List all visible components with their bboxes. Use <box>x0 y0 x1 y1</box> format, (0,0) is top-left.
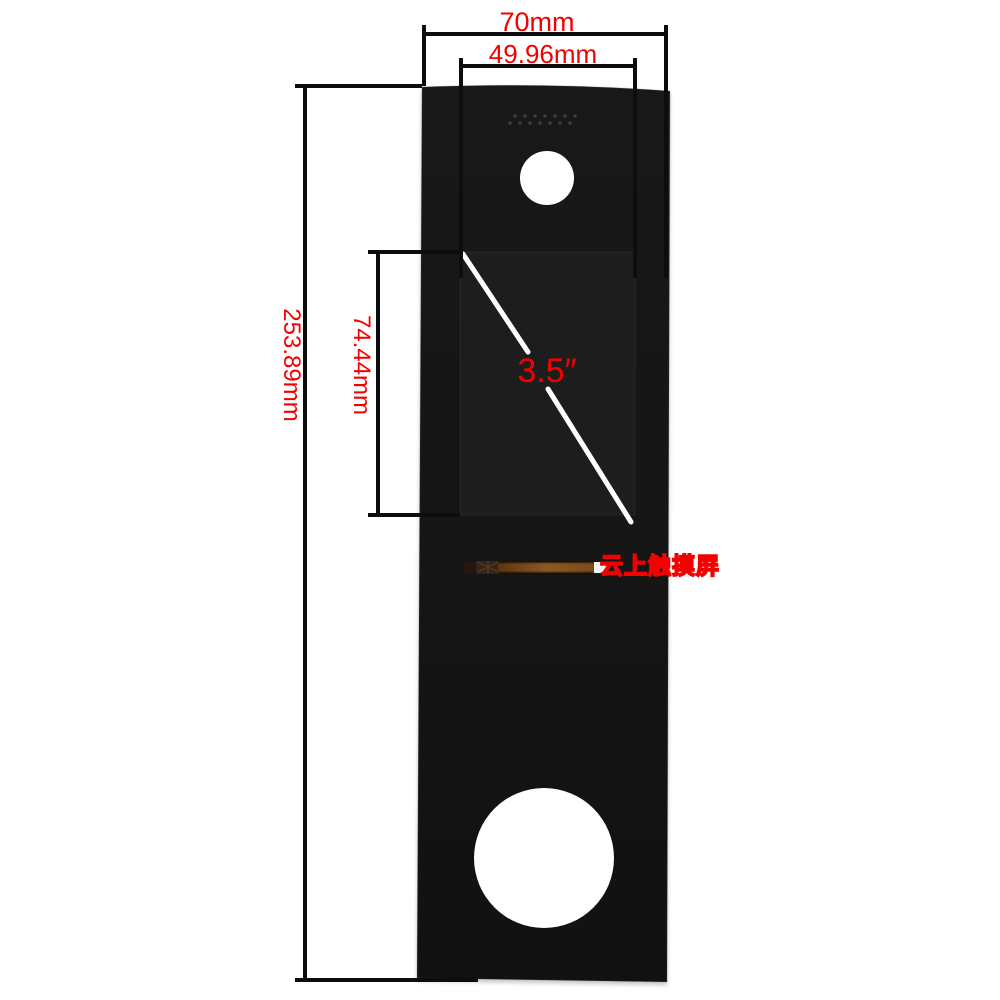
speaker-dot <box>568 121 572 125</box>
speaker-dot <box>523 114 527 118</box>
cable-strip-edge-top <box>498 562 596 564</box>
cable-tip <box>462 562 478 574</box>
cable-strip <box>498 562 596 573</box>
speaker-dot <box>518 121 522 125</box>
speaker-dot <box>543 114 547 118</box>
cable-strip-edge-bottom <box>498 572 596 574</box>
speaker-dot <box>528 121 532 125</box>
camera-hole <box>520 151 574 205</box>
speaker-dot <box>513 114 517 118</box>
product-photo: 70mm 49.96mm 253.89mm 74.44mm 3.5″ 云上触摸屏 <box>0 0 1000 1000</box>
bottom-hole <box>474 788 614 928</box>
label-outer-width: 70mm <box>499 9 574 36</box>
speaker-dot <box>548 121 552 125</box>
speaker-dot <box>558 121 562 125</box>
speaker-dot <box>563 114 567 118</box>
panel-graphic <box>0 0 1000 1000</box>
speaker-dot <box>538 121 542 125</box>
speaker-dot <box>573 114 577 118</box>
speaker-dot <box>533 114 537 118</box>
flex-cable <box>462 561 608 574</box>
watermark-text: 云上触摸屏 <box>600 555 720 578</box>
label-screen-height: 74.44mm <box>349 315 373 415</box>
label-screen-diagonal: 3.5″ <box>517 354 576 388</box>
label-inner-width: 49.96mm <box>489 41 597 67</box>
label-outer-height: 253.89mm <box>279 308 303 421</box>
speaker-dot <box>508 121 512 125</box>
speaker-dot <box>553 114 557 118</box>
